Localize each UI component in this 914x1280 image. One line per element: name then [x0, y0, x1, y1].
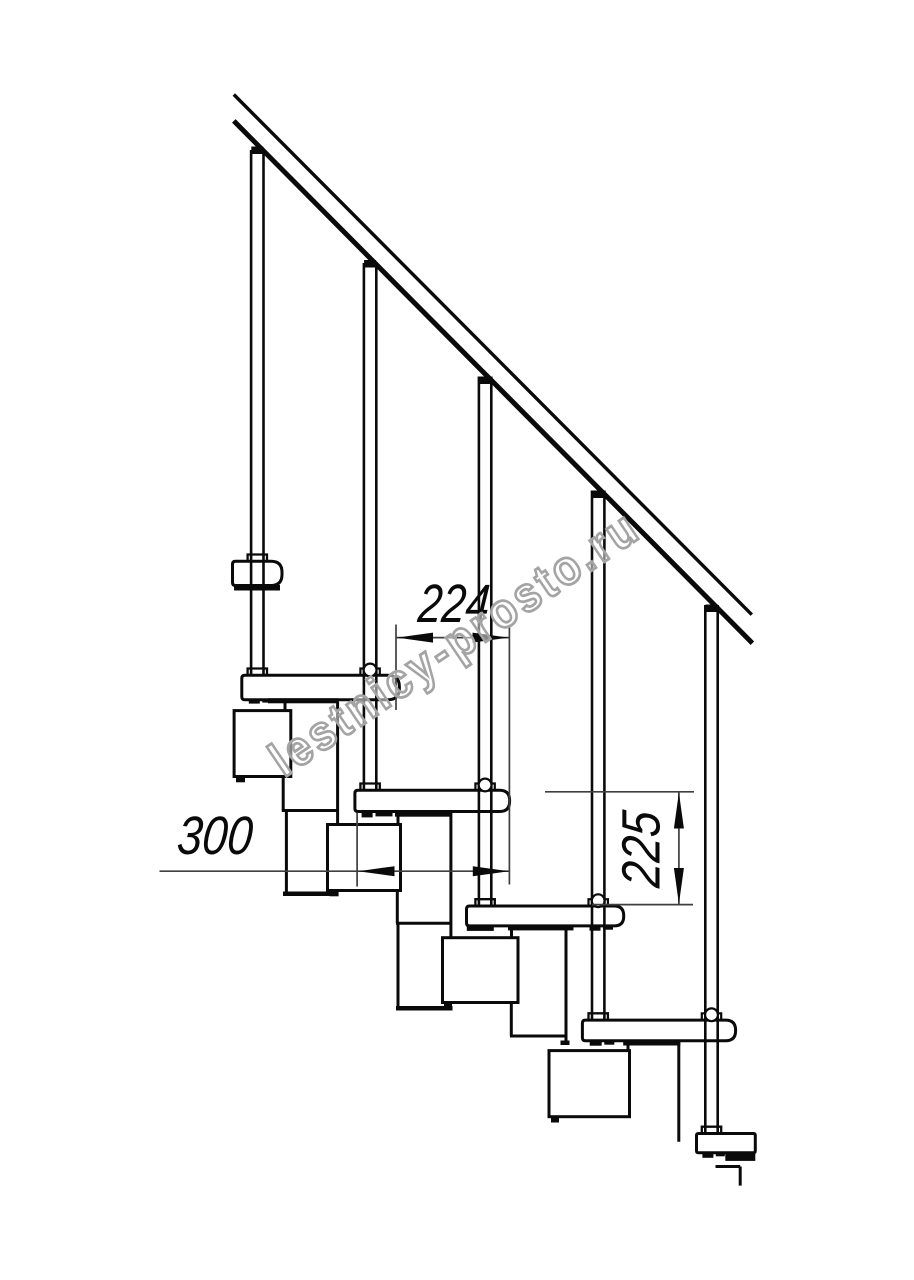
svg-text:300: 300: [175, 806, 255, 866]
svg-text:225: 225: [612, 807, 672, 890]
